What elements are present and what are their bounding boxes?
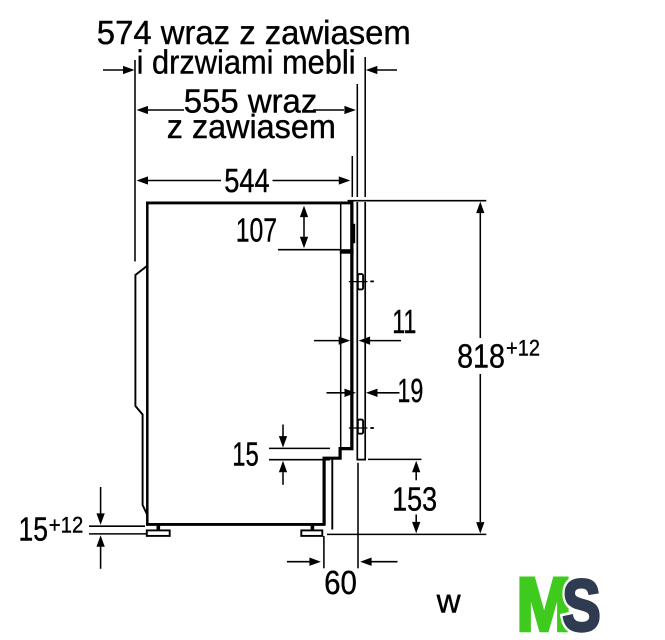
svg-text:15: 15 (19, 512, 49, 549)
svg-text:19: 19 (397, 373, 423, 410)
svg-text:107: 107 (236, 212, 277, 249)
svg-text:15: 15 (232, 436, 258, 473)
svg-text:i drzwiami mebli: i drzwiami mebli (137, 45, 356, 82)
svg-text:544: 544 (224, 163, 269, 200)
svg-text:153: 153 (392, 481, 437, 518)
svg-text:+12: +12 (49, 512, 84, 537)
svg-text:z zawiasem: z zawiasem (167, 109, 336, 146)
svg-text:11: 11 (392, 304, 416, 341)
svg-text:60: 60 (324, 565, 357, 602)
svg-text:818: 818 (457, 339, 505, 376)
svg-text:+12: +12 (506, 335, 540, 360)
svg-text:w: w (436, 583, 462, 620)
svg-text:S: S (562, 566, 601, 640)
